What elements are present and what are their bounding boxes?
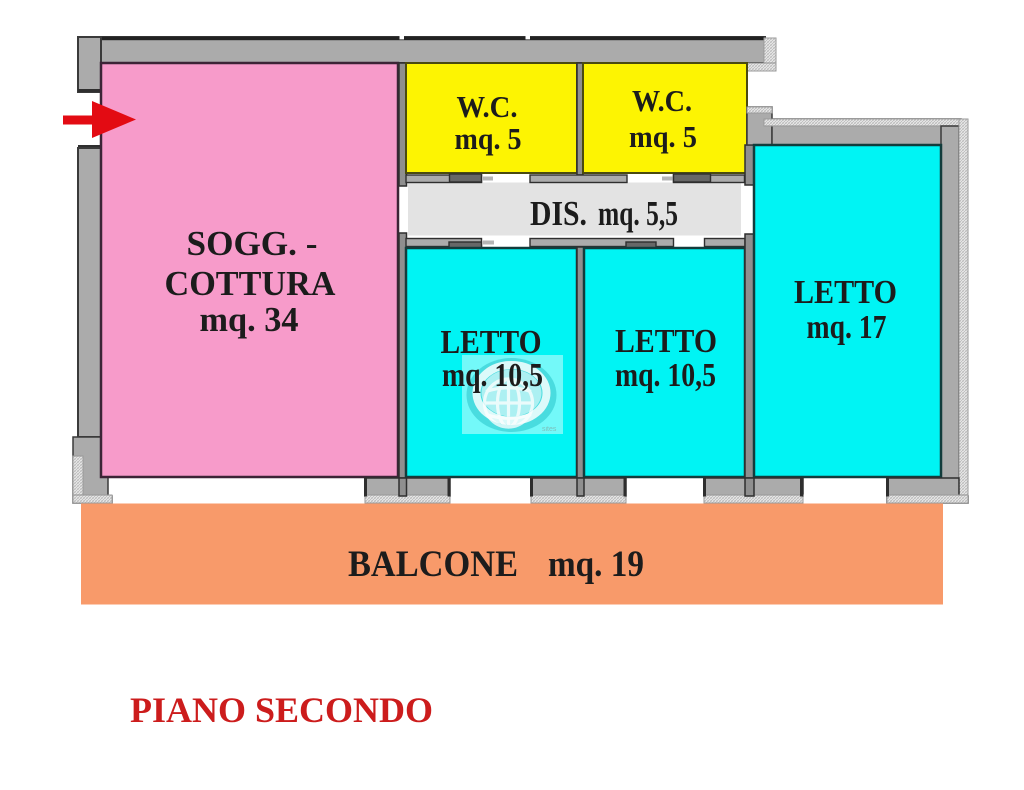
- svg-text:mq. 10,5: mq. 10,5: [615, 357, 716, 394]
- svg-text:mq. 34: mq. 34: [200, 300, 299, 339]
- svg-text:W.C.: W.C.: [632, 83, 692, 118]
- svg-text:BALCONE: BALCONE: [348, 544, 518, 585]
- svg-text:mq. 5: mq. 5: [455, 121, 522, 156]
- svg-text:LETTO: LETTO: [794, 274, 897, 311]
- svg-text:mq. 17: mq. 17: [807, 309, 887, 346]
- svg-text:SOGG. -: SOGG. -: [187, 224, 318, 263]
- svg-text:sites: sites: [542, 426, 557, 433]
- svg-text:mq. 19: mq. 19: [548, 544, 644, 585]
- svg-text:PIANO SECONDO: PIANO SECONDO: [130, 690, 433, 730]
- svg-text:LETTO: LETTO: [615, 323, 717, 360]
- svg-text:mq. 5,5: mq. 5,5: [598, 194, 678, 233]
- svg-text:mq. 10,5: mq. 10,5: [442, 357, 543, 394]
- svg-text:COTTURA: COTTURA: [165, 264, 337, 303]
- svg-text:LETTO: LETTO: [441, 324, 542, 361]
- svg-text:mq. 5: mq. 5: [629, 119, 697, 154]
- svg-text:W.C.: W.C.: [457, 89, 518, 124]
- svg-text:DIS.: DIS.: [530, 194, 587, 233]
